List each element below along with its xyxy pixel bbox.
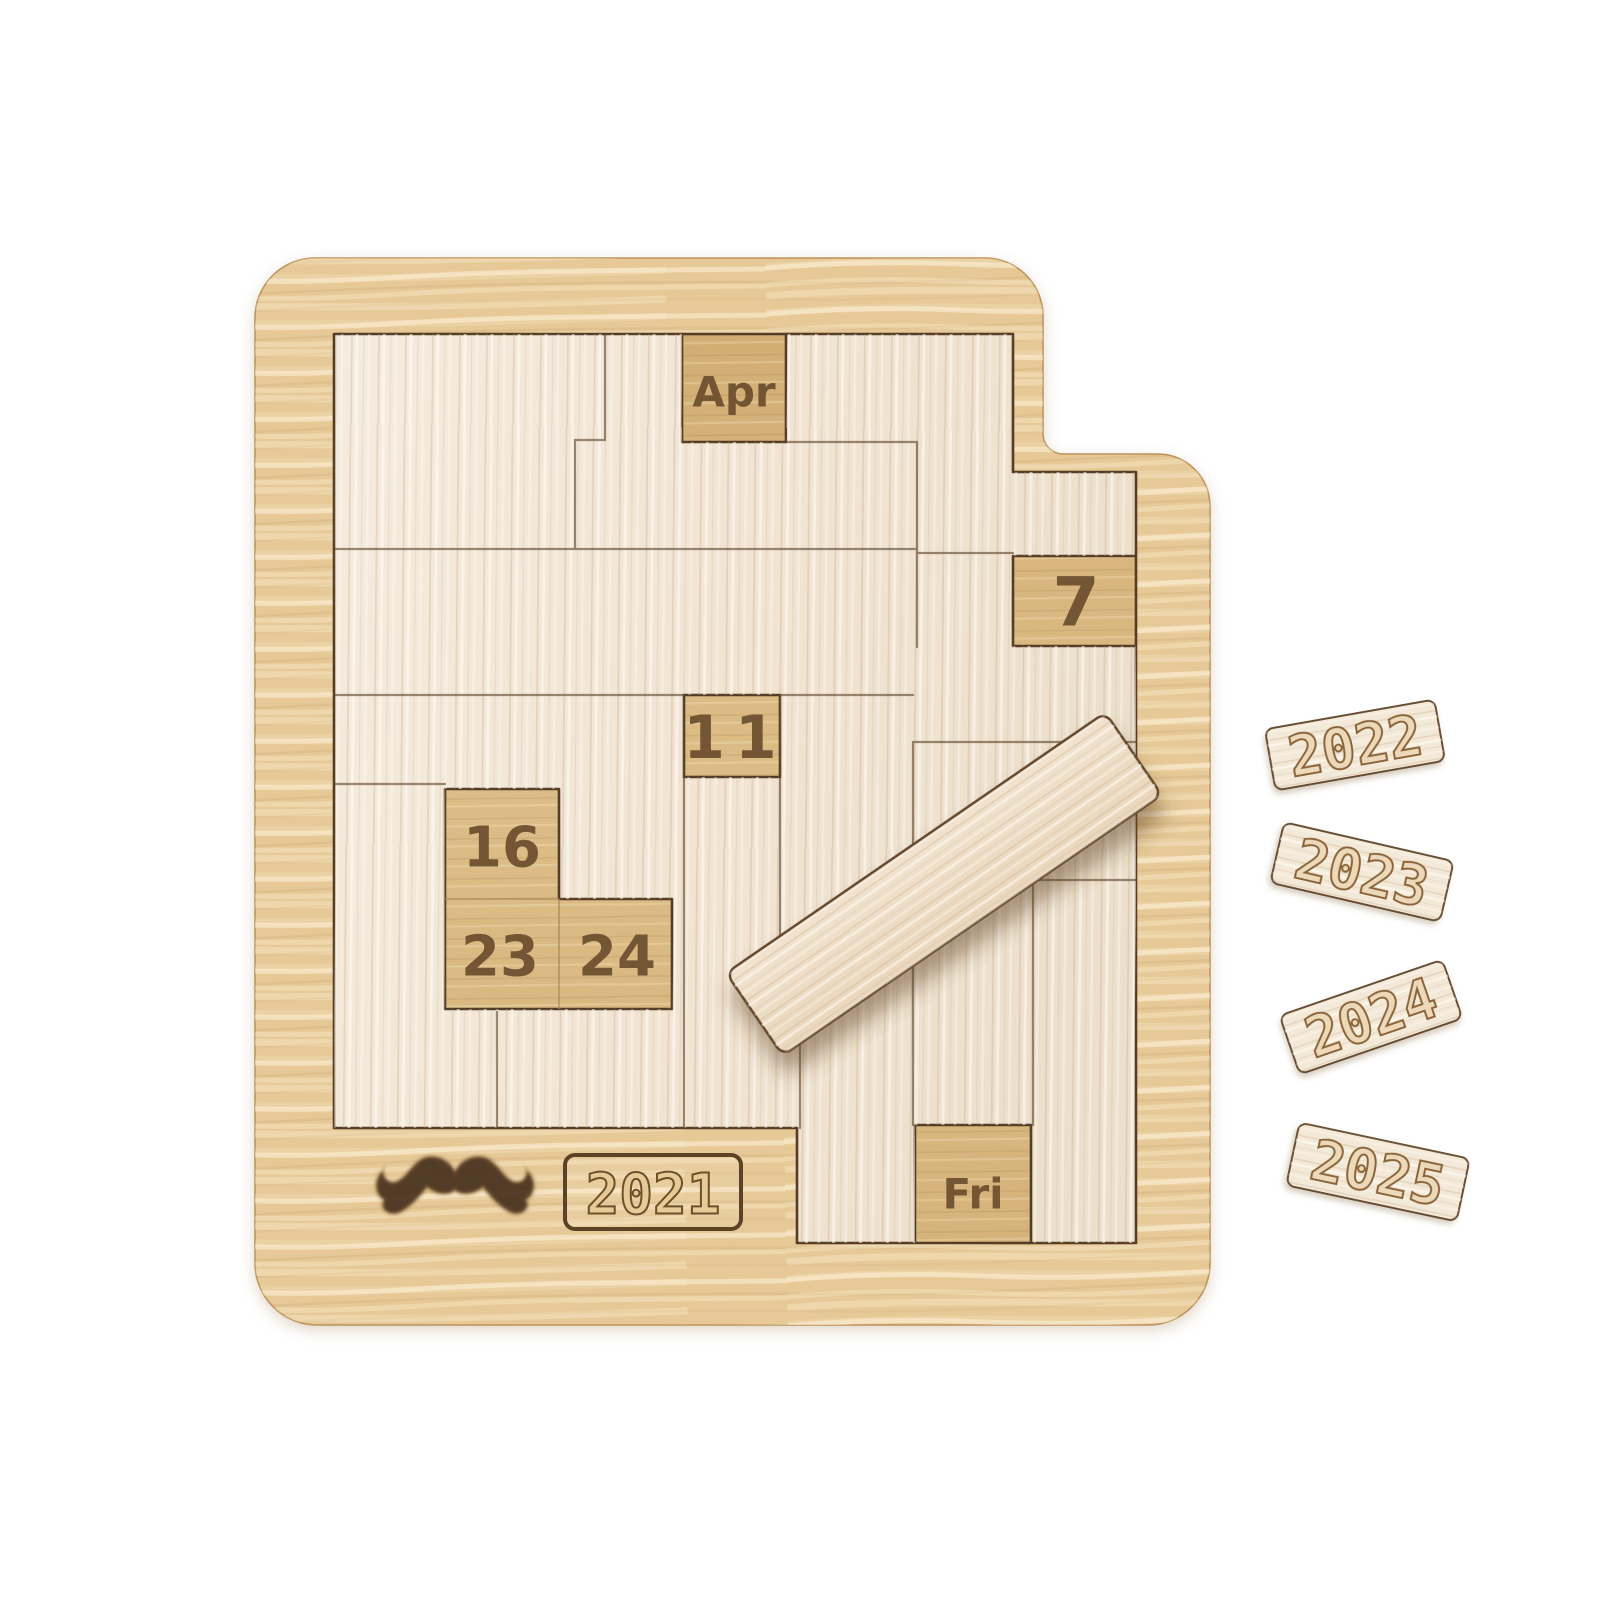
- calendar-cell-month: Apr: [692, 368, 776, 417]
- product-photo: Apr 7 11 16 23 24 Fri: [0, 0, 1601, 1601]
- weekday-engraving: Fri: [942, 1170, 1003, 1219]
- calendar-cell-day11: 11: [683, 703, 787, 773]
- day23-engraving: 23: [461, 925, 539, 990]
- day11-engraving: 11: [683, 703, 787, 773]
- year-plate: 2021: [565, 1155, 741, 1229]
- day16-engraving: 16: [463, 816, 541, 881]
- day24-engraving: 24: [578, 925, 656, 990]
- calendar-cell-day24: 24: [578, 925, 656, 990]
- month-engraving: Apr: [692, 368, 776, 417]
- calendar-cell-weekday: Fri: [942, 1170, 1003, 1219]
- year-plate-label: 2021: [586, 1163, 721, 1228]
- day7-engraving: 7: [1052, 564, 1099, 643]
- calendar-cell-day23: 23: [461, 925, 539, 990]
- calendar-cell-day7: 7: [1052, 564, 1099, 643]
- calendar-puzzle-scene: Apr 7 11 16 23 24 Fri: [0, 0, 1601, 1601]
